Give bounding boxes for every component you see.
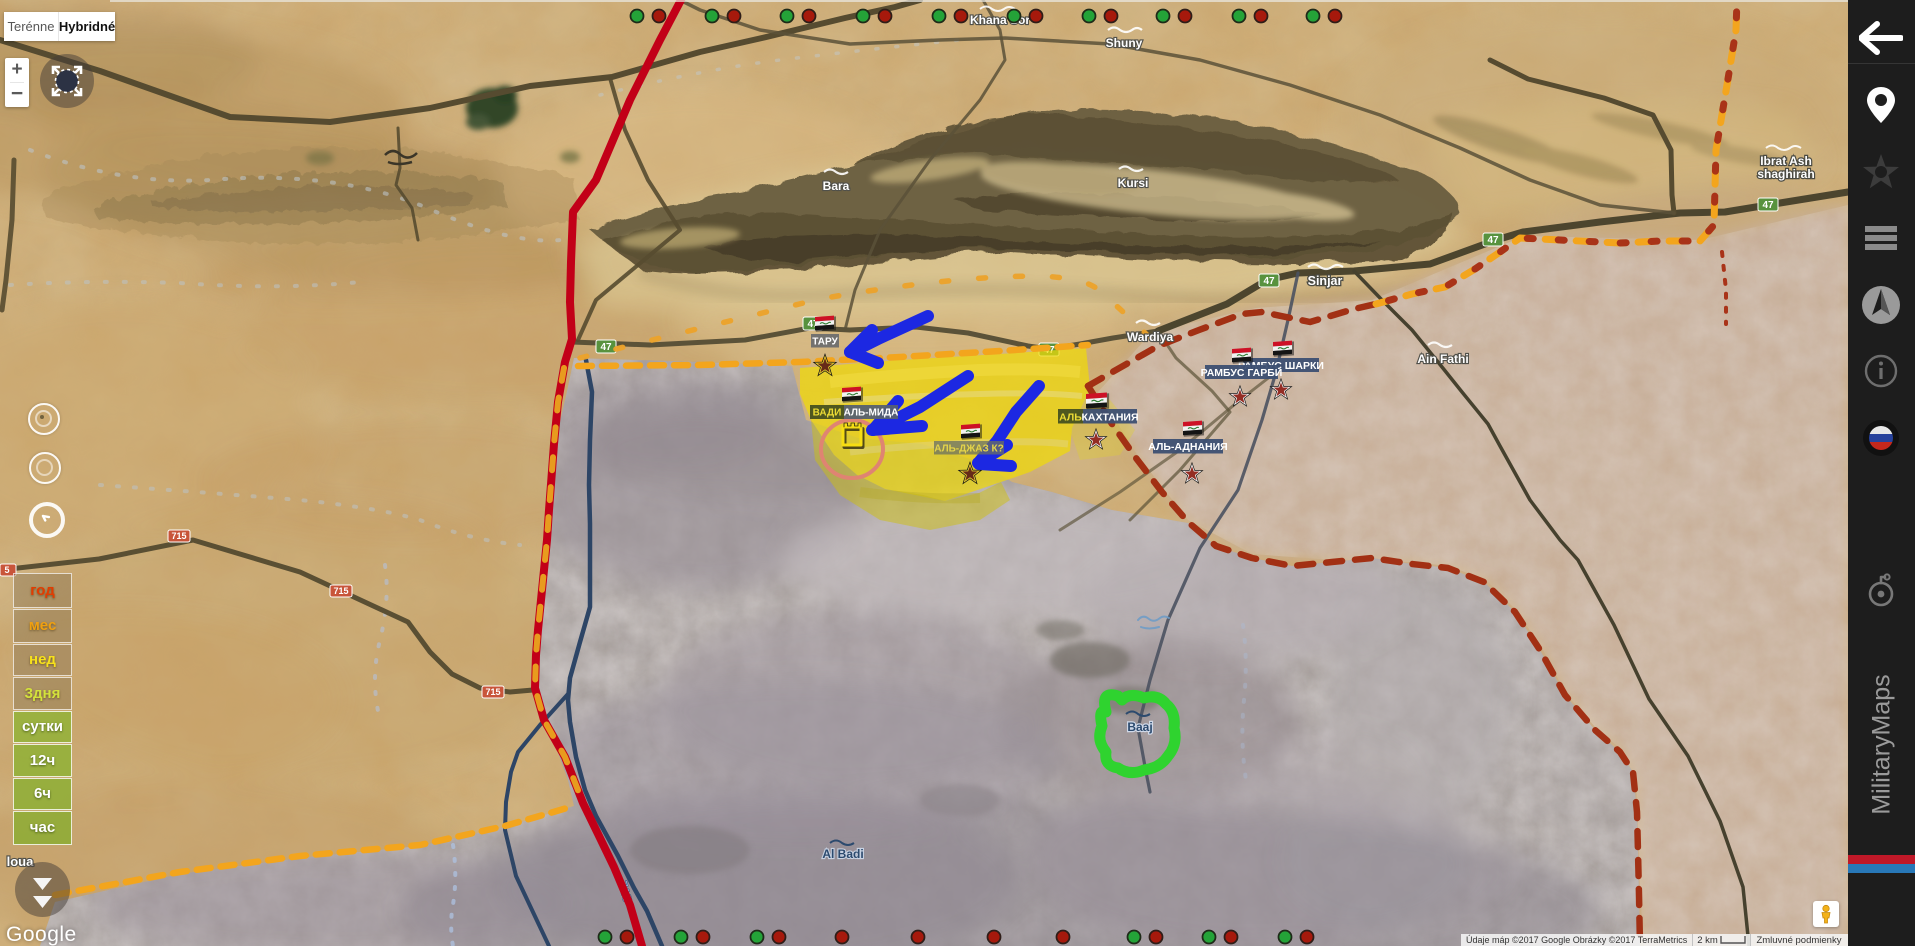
svg-text:АЛЬ-МИДА: АЛЬ-МИДА — [844, 408, 899, 419]
svg-text:47: 47 — [1762, 200, 1774, 211]
svg-text:Kursi: Kursi — [1118, 176, 1149, 190]
svg-text:Al Badi: Al Badi — [822, 847, 863, 861]
svg-text:ВАДИ: ВАДИ — [813, 408, 842, 419]
svg-text:shaghirah: shaghirah — [1757, 167, 1814, 181]
svg-text:Baaj: Baaj — [1127, 720, 1152, 734]
svg-text:Bara: Bara — [823, 179, 850, 193]
svg-text:РАМБУС ГАРБИ: РАМБУС ГАРБИ — [1201, 367, 1283, 379]
svg-text:Ibrat Ash: Ibrat Ash — [1760, 154, 1812, 168]
svg-text:715: 715 — [171, 531, 186, 541]
svg-text:КАХТАНИЯ: КАХТАНИЯ — [1081, 412, 1138, 424]
svg-text:5: 5 — [4, 565, 9, 575]
svg-text:АЛЬ-АДНАНИЯ: АЛЬ-АДНАНИЯ — [1148, 441, 1227, 453]
svg-text:Wardiya: Wardiya — [1127, 330, 1174, 344]
svg-text:Shuny: Shuny — [1106, 36, 1143, 50]
svg-text:ТАРУ: ТАРУ — [812, 337, 838, 348]
svg-text:47: 47 — [1487, 235, 1499, 246]
svg-text:Ain Fathi: Ain Fathi — [1417, 352, 1468, 366]
svg-text:АЛЬ-ДЖАЗ К?: АЛЬ-ДЖАЗ К? — [934, 444, 1004, 455]
svg-text:АЛЬ: АЛЬ — [1059, 412, 1082, 424]
svg-text:715: 715 — [333, 586, 348, 596]
svg-text:Sinjar: Sinjar — [1308, 274, 1343, 288]
svg-text:47: 47 — [600, 342, 612, 353]
svg-text:715: 715 — [485, 687, 500, 697]
svg-text:47: 47 — [1263, 276, 1275, 287]
